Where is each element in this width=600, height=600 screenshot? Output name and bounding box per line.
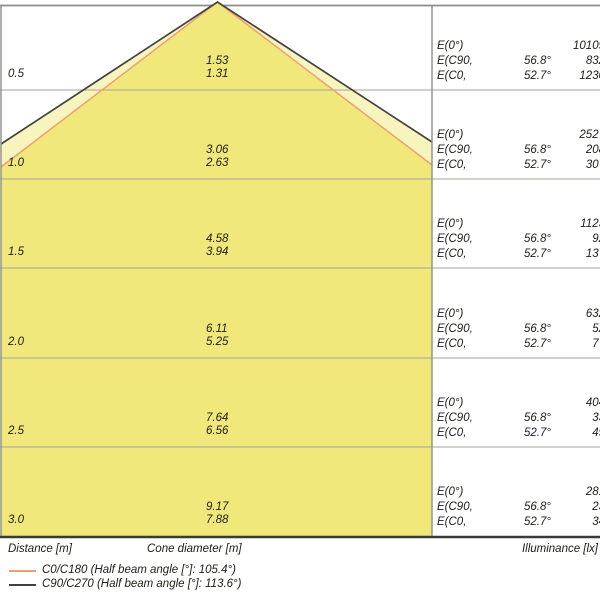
e0-value: 404 [586, 397, 600, 409]
ec90-angle: 56.8° [524, 412, 551, 424]
ec90-value: 23 [592, 501, 600, 513]
ec90-label: E(C90, [437, 55, 473, 67]
e0-label: E(0°) [437, 218, 463, 230]
ec0-label: E(C0, [437, 70, 466, 82]
ec90-angle: 56.8° [524, 55, 551, 67]
ec0-value: 1230 [579, 70, 600, 82]
distance-label: 0.5 [8, 68, 24, 81]
illuminance-row-e0: E(0°) 281 [437, 486, 600, 500]
e0-value: 281 [586, 486, 600, 498]
cone-diameter-c0: 6.56 [206, 425, 228, 438]
ec0-value: 137 [586, 248, 600, 260]
legend-line-c0-c180 [9, 570, 36, 572]
e0-label: E(0°) [437, 397, 463, 409]
ec90-label: E(C90, [437, 233, 473, 245]
cone-diameter-c90: 3.06 [206, 144, 228, 157]
cone-diameter-c90: 4.58 [206, 233, 228, 246]
distance-label: 1.0 [8, 157, 24, 170]
illuminance-row-ec0: E(C0, 52.7° 1230 [437, 70, 600, 84]
ec0-value: 34 [592, 516, 600, 528]
ec90-value: 33 [592, 412, 600, 424]
ec0-label: E(C0, [437, 338, 466, 350]
illuminance-row-e0: E(0°) 10109 [437, 40, 600, 54]
illuminance-row-ec0: E(C0, 52.7° 137 [437, 248, 600, 262]
cone-diameter-c0: 1.31 [206, 68, 228, 81]
cone-diameter-c0: 3.94 [206, 246, 228, 259]
illuminance-row-ec90: E(C90, 56.8° 23 [437, 501, 600, 515]
illuminance-row-e0: E(0°) 632 [437, 308, 600, 322]
ec0-angle: 52.7° [524, 159, 551, 171]
e0-value: 1123 [580, 218, 600, 230]
cone-diameter-values: 4.58 3.94 [206, 233, 228, 259]
ec0-label: E(C0, [437, 248, 466, 260]
ec90-label: E(C90, [437, 501, 473, 513]
ec0-angle: 52.7° [524, 70, 551, 82]
ec90-angle: 56.8° [524, 323, 551, 335]
cone-diameter-values: 1.53 1.31 [206, 55, 228, 81]
illuminance-row-ec90: E(C90, 56.8° 208 [437, 144, 600, 158]
distance-label: 2.0 [8, 336, 24, 349]
ec0-angle: 52.7° [524, 248, 551, 260]
cone-diameter-c0: 2.63 [206, 157, 228, 170]
cone-diameter-c90: 7.64 [206, 412, 228, 425]
legend-label-c0-c180: C0/C180 (Half beam angle [°]: 105.4°) [42, 564, 236, 576]
distance-label: 3.0 [8, 514, 24, 527]
illuminance-row-ec0: E(C0, 52.7° 307 [437, 159, 600, 173]
illuminance-row-e0: E(0°) 2527 [437, 129, 600, 143]
illuminance-row-ec0: E(C0, 52.7° 34 [437, 516, 600, 530]
e0-label: E(0°) [437, 308, 463, 320]
ec0-angle: 52.7° [524, 427, 551, 439]
e0-value: 632 [586, 308, 600, 320]
legend-label-c90-c270: C90/C270 (Half beam angle [°]: 113.6°) [42, 578, 241, 590]
ec90-angle: 56.8° [524, 233, 551, 245]
illuminance-row-e0: E(0°) 404 [437, 397, 600, 411]
ec0-label: E(C0, [437, 516, 466, 528]
e0-value: 10109 [573, 40, 600, 52]
ec90-label: E(C90, [437, 323, 473, 335]
ec90-value: 52 [592, 323, 600, 335]
cone-diameter-values: 9.17 7.88 [206, 501, 228, 527]
e0-value: 2527 [579, 129, 600, 141]
cone-diameter-c0: 5.25 [206, 336, 228, 349]
illuminance-row-ec0: E(C0, 52.7° 77 [437, 338, 600, 352]
cone-inner-fill [1, 2, 432, 537]
illuminance-row-ec90: E(C90, 56.8° 832 [437, 55, 600, 69]
ec0-label: E(C0, [437, 159, 466, 171]
cone-diameter-c90: 9.17 [206, 501, 228, 514]
cone-diameter-c90: 1.53 [206, 55, 228, 68]
cone-diameter-values: 7.64 6.56 [206, 412, 228, 438]
ec90-value: 208 [586, 144, 600, 156]
ec90-label: E(C90, [437, 412, 473, 424]
ec0-label: E(C0, [437, 427, 466, 439]
e0-label: E(0°) [437, 40, 463, 52]
distance-label: 2.5 [8, 425, 24, 438]
illuminance-row-ec0: E(C0, 52.7° 49 [437, 427, 600, 441]
e0-label: E(0°) [437, 486, 463, 498]
ec0-value: 49 [592, 427, 600, 439]
ec0-value: 77 [592, 338, 600, 350]
cone-diameter-values: 3.06 2.63 [206, 144, 228, 170]
illuminance-axis-label: Illuminance [lx] [522, 543, 598, 556]
ec0-angle: 52.7° [524, 338, 551, 350]
ec90-angle: 56.8° [524, 501, 551, 513]
distance-label: 1.5 [8, 246, 24, 259]
cone-diameter-values: 6.11 5.25 [206, 323, 228, 349]
illuminance-row-ec90: E(C90, 56.8° 33 [437, 412, 600, 426]
ec0-value: 307 [586, 159, 600, 171]
illuminance-row-ec90: E(C90, 56.8° 52 [437, 323, 600, 337]
cone-diameter-c0: 7.88 [206, 514, 228, 527]
illuminance-row-ec90: E(C90, 56.8° 92 [437, 233, 600, 247]
e0-label: E(0°) [437, 129, 463, 141]
cone-diameter-c90: 6.11 [206, 323, 228, 336]
ec90-angle: 56.8° [524, 144, 551, 156]
ec90-value: 92 [592, 233, 600, 245]
distance-axis-label: Distance [m] [8, 543, 72, 556]
ec90-label: E(C90, [437, 144, 473, 156]
cone-diagram: 0.5 1.53 1.31 E(0°) 10109 E(C90, 56.8° 8… [0, 0, 600, 600]
ec0-angle: 52.7° [524, 516, 551, 528]
ec90-value: 832 [586, 55, 600, 67]
illuminance-row-e0: E(0°) 1123 [437, 218, 600, 232]
legend-line-c90-c270 [9, 584, 36, 586]
cone-diameter-axis-label: Cone diameter [m] [147, 543, 242, 556]
